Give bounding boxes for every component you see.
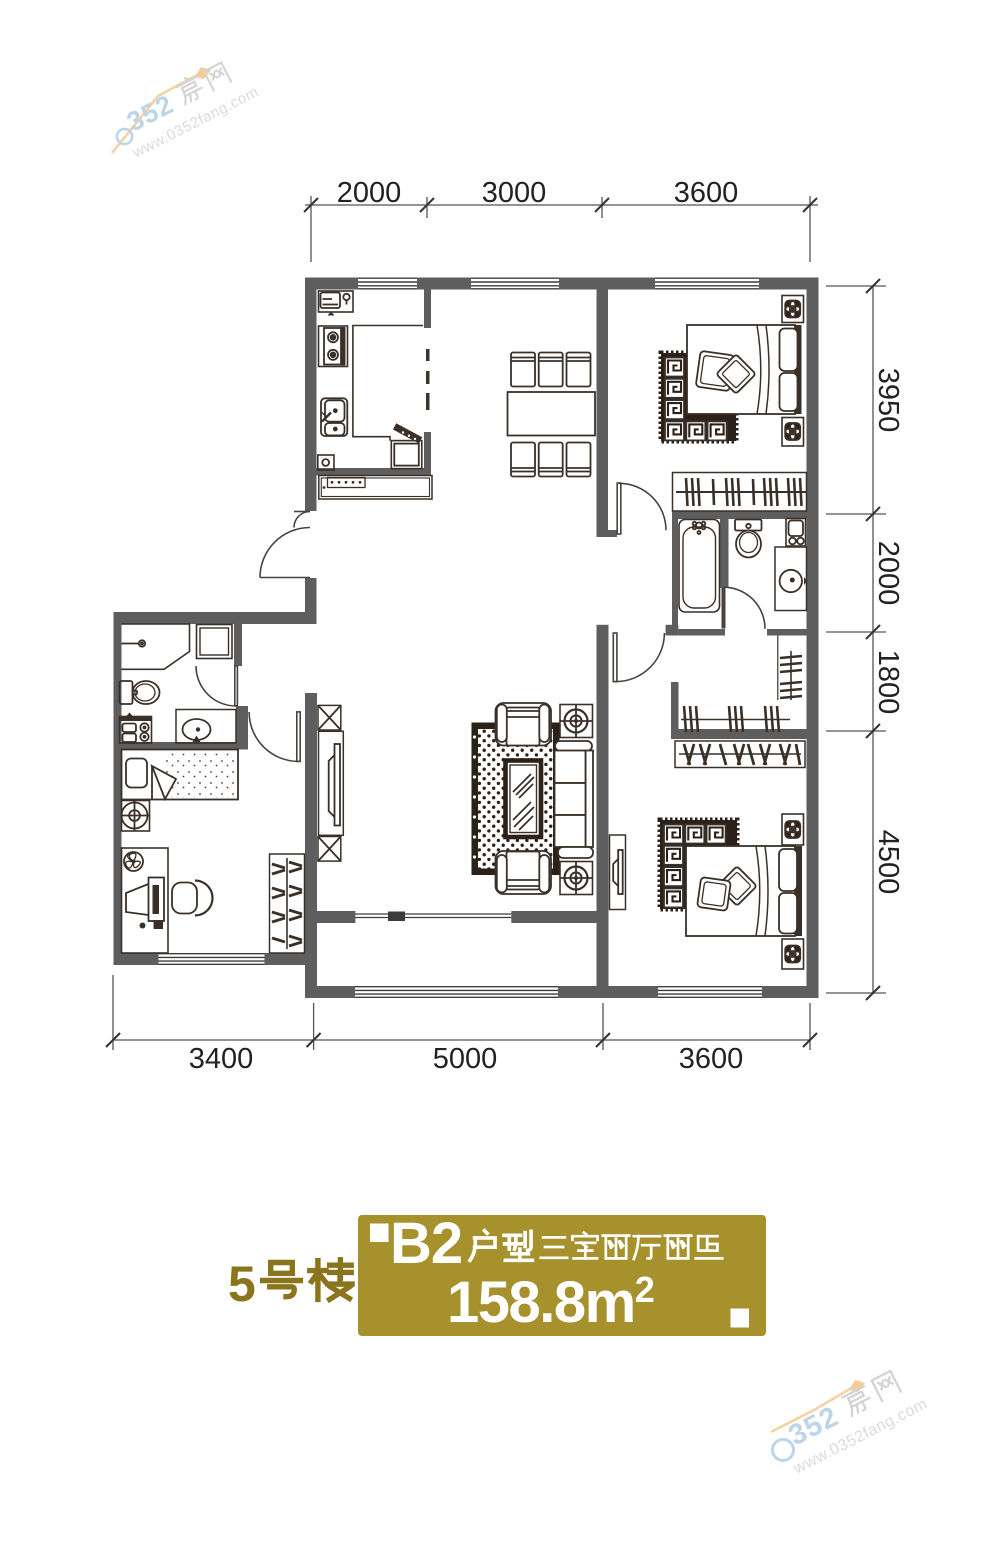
svg-text:1800: 1800 xyxy=(872,650,904,715)
svg-text:3400: 3400 xyxy=(189,1043,254,1075)
svg-text:2000: 2000 xyxy=(337,177,402,209)
svg-text:158.8m2: 158.8m2 xyxy=(447,1269,654,1335)
svg-text:2000: 2000 xyxy=(872,541,904,606)
svg-text:3950: 3950 xyxy=(872,368,904,433)
svg-text:3000: 3000 xyxy=(482,177,547,209)
svg-text:3600: 3600 xyxy=(679,1043,744,1075)
svg-text:5000: 5000 xyxy=(433,1043,498,1075)
svg-text:4500: 4500 xyxy=(872,830,904,895)
svg-text:B2: B2 xyxy=(390,1211,462,1276)
svg-text:3600: 3600 xyxy=(674,177,739,209)
svg-text:5: 5 xyxy=(228,1256,256,1312)
